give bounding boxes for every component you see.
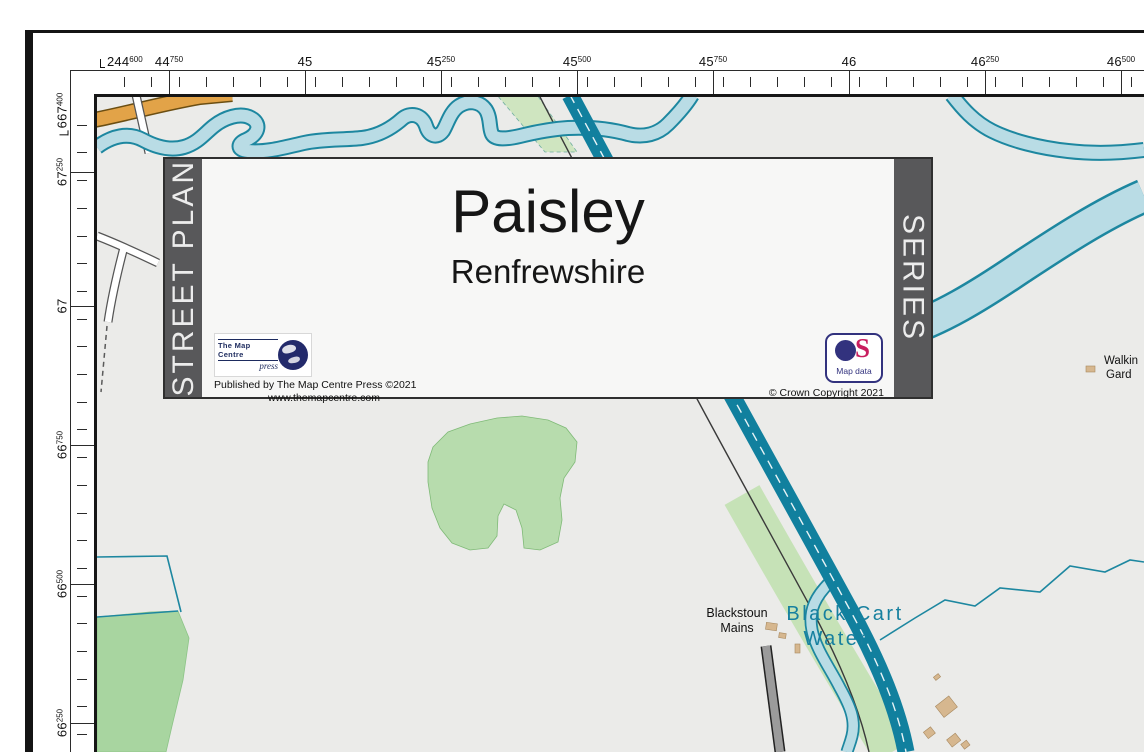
minor-tick-left: [77, 125, 87, 126]
grid-label-left: 66250: [55, 709, 70, 737]
os-caption: Map data: [827, 366, 881, 376]
minor-tick-top: [179, 77, 180, 87]
minor-tick-top: [995, 77, 996, 87]
minor-tick-top: [777, 77, 778, 87]
minor-tick-left: [77, 402, 87, 403]
sheet-border-top: [25, 30, 1144, 33]
minor-tick-left: [77, 734, 87, 735]
minor-tick-top: [315, 77, 316, 87]
globe-icon: [278, 340, 308, 370]
minor-tick-top: [1131, 77, 1132, 87]
major-tick-top: [169, 70, 170, 94]
minor-tick-top: [369, 77, 370, 87]
minor-tick-top: [1022, 77, 1023, 87]
minor-tick-top: [1049, 77, 1050, 87]
grid-label-top: 45250: [427, 54, 455, 69]
major-tick-top: [305, 70, 306, 94]
minor-tick-top: [233, 77, 234, 87]
edge-label: Gard: [1106, 369, 1132, 381]
major-tick-top: [441, 70, 442, 94]
minor-tick-top: [804, 77, 805, 87]
minor-tick-left: [77, 706, 87, 707]
minor-tick-left: [77, 429, 87, 430]
grid-corner-label-top: 244600: [100, 54, 143, 69]
minor-tick-top: [859, 77, 860, 87]
minor-tick-top: [260, 77, 261, 87]
minor-tick-left: [77, 651, 87, 652]
minor-tick-top: [750, 77, 751, 87]
major-tick-top: [1121, 70, 1122, 94]
minor-tick-left: [77, 180, 87, 181]
minor-tick-left: [77, 263, 87, 264]
minor-tick-left: [77, 152, 87, 153]
grid-label-left: 66750: [55, 431, 70, 459]
minor-tick-top: [614, 77, 615, 87]
grid-label-top: 44750: [155, 54, 183, 69]
title-side-band-right: SERIES: [894, 159, 931, 397]
minor-tick-top: [532, 77, 533, 87]
minor-tick-left: [77, 236, 87, 237]
grid-label-top: 45: [298, 54, 313, 69]
os-logo-icon: S: [827, 335, 881, 365]
map-centre-logo-text: The Map Centre press: [218, 339, 278, 371]
grid-label-top: 46250: [971, 54, 999, 69]
major-tick-top: [577, 70, 578, 94]
minor-tick-top: [913, 77, 914, 87]
minor-tick-left: [77, 568, 87, 569]
grid-label-left: 66500: [55, 570, 70, 598]
grid-label-left: 67250: [55, 158, 70, 186]
major-tick-left: [70, 306, 94, 307]
major-tick-top: [849, 70, 850, 94]
ruler-outer-line-top: [70, 70, 1144, 71]
minor-tick-top: [559, 77, 560, 87]
edge-label: Walkin: [1104, 355, 1138, 367]
grid-label-top: 46: [842, 54, 857, 69]
minor-tick-top: [124, 77, 125, 87]
minor-tick-top: [423, 77, 424, 87]
major-tick-top: [713, 70, 714, 94]
minor-tick-top: [967, 77, 968, 87]
minor-tick-left: [77, 346, 87, 347]
minor-tick-left: [77, 513, 87, 514]
minor-tick-top: [641, 77, 642, 87]
minor-tick-top: [831, 77, 832, 87]
map-subtitle: Renfrewshire: [202, 253, 894, 291]
minor-tick-left: [77, 374, 87, 375]
farm-label: Blackstoun: [706, 606, 767, 620]
minor-tick-left: [77, 291, 87, 292]
minor-tick-top: [587, 77, 588, 87]
series-label: SERIES: [896, 214, 930, 342]
minor-tick-left: [77, 540, 87, 541]
minor-tick-left: [77, 457, 87, 458]
minor-tick-left: [77, 623, 87, 624]
sheet-border-left: [25, 30, 33, 752]
publisher-website: www.themapcentre.com: [214, 392, 434, 404]
grid-label-top: 45750: [699, 54, 727, 69]
farm-label: Mains: [720, 621, 753, 635]
major-tick-left: [70, 723, 94, 724]
map-centre-press-logo: The Map Centre press: [214, 333, 312, 377]
minor-tick-left: [77, 679, 87, 680]
title-side-band-left: STREET PLAN: [165, 159, 202, 397]
river-name-label: Black Cart: [786, 603, 903, 625]
minor-tick-left: [77, 208, 87, 209]
major-tick-left: [70, 445, 94, 446]
street-plan-label: STREET PLAN: [167, 159, 201, 397]
minor-tick-top: [940, 77, 941, 87]
minor-tick-top: [478, 77, 479, 87]
minor-tick-top: [206, 77, 207, 87]
map-sheet-page: Blackstoun Mains Black Cart Water Walkin…: [0, 0, 1144, 752]
river-name-label: Water: [803, 628, 868, 650]
minor-tick-left: [77, 596, 87, 597]
minor-tick-left: [77, 319, 87, 320]
minor-tick-top: [451, 77, 452, 87]
map-title: Paisley: [202, 177, 894, 246]
map-title-box: STREET PLAN SERIES Paisley Renfrewshire …: [163, 157, 933, 399]
minor-tick-top: [505, 77, 506, 87]
major-tick-top: [985, 70, 986, 94]
minor-tick-top: [1103, 77, 1104, 87]
grid-label-top: 45500: [563, 54, 591, 69]
grid-label-top: 46500: [1107, 54, 1135, 69]
grid-corner-label-left: 667400: [55, 93, 70, 136]
minor-tick-top: [342, 77, 343, 87]
minor-tick-top: [668, 77, 669, 87]
os-circle-icon: [835, 340, 856, 361]
grid-label-left: 67: [55, 299, 70, 314]
ruler-outer-line-left: [70, 70, 71, 752]
crown-copyright: © Crown Copyright 2021: [769, 387, 884, 399]
major-tick-left: [70, 584, 94, 585]
minor-tick-top: [396, 77, 397, 87]
major-tick-left: [70, 172, 94, 173]
minor-tick-left: [77, 485, 87, 486]
os-logo: S Map data: [825, 333, 883, 383]
minor-tick-top: [1076, 77, 1077, 87]
minor-tick-top: [151, 77, 152, 87]
minor-tick-top: [723, 77, 724, 87]
published-line: Published by The Map Centre Press ©2021: [214, 379, 417, 391]
minor-tick-top: [695, 77, 696, 87]
minor-tick-top: [886, 77, 887, 87]
minor-tick-top: [287, 77, 288, 87]
